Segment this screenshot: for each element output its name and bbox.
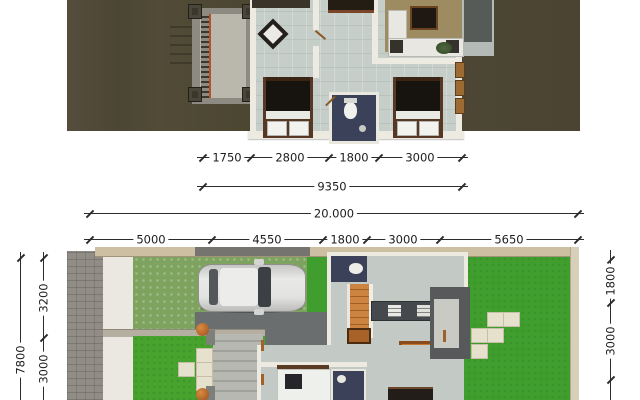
- stepping-stone: [196, 362, 213, 377]
- sofa-ground: [388, 387, 433, 400]
- door-frame: [261, 340, 264, 351]
- bathroom-lower: [331, 369, 366, 400]
- left-dimensions: 3200 3000 7800: [0, 0, 70, 400]
- dim-total-value: 7800: [15, 342, 28, 377]
- bathroom-ground: [331, 256, 367, 282]
- flower-pot: [196, 323, 209, 336]
- dim-tick: [40, 334, 48, 342]
- patio-floor: [434, 299, 459, 348]
- sink: [337, 375, 346, 383]
- car-windshield: [258, 267, 271, 307]
- floorplan-canvas: 1750 2800 1800 3000 9350 20.000 5000 455…: [0, 0, 640, 400]
- car: [196, 258, 308, 314]
- dim-tick: [17, 254, 25, 262]
- bedroom-desk: [277, 369, 331, 400]
- door-frame: [261, 374, 264, 385]
- dim-value: 3200: [38, 280, 51, 315]
- entry-steps: [213, 334, 263, 400]
- garden-strip: [307, 256, 327, 314]
- bedroom-headboard: [277, 365, 329, 369]
- door-frame: [443, 330, 446, 342]
- car-mirror: [254, 259, 264, 265]
- stepping-stone: [487, 328, 504, 343]
- cooktop: [388, 305, 401, 317]
- toilet: [349, 263, 363, 274]
- ground-floor-plan: [0, 0, 640, 400]
- dim-value: 3000: [605, 323, 618, 358]
- dim-value: 3000: [38, 351, 51, 386]
- carport-gate: [195, 247, 310, 256]
- stepping-stone: [196, 348, 213, 363]
- car-mirror: [254, 309, 264, 315]
- stepping-stone: [471, 344, 488, 359]
- car-rear-window: [209, 269, 218, 305]
- desk-chair: [285, 374, 302, 389]
- stepping-stone: [178, 362, 195, 377]
- stone-fence: [67, 251, 103, 400]
- dim-tick: [607, 376, 615, 384]
- dim-line: [20, 252, 21, 400]
- wardrobe: [347, 328, 371, 344]
- stepping-stone: [503, 312, 520, 327]
- patio-deck: [430, 287, 470, 359]
- stepping-stone: [487, 312, 504, 327]
- right-dimensions: 1800 3000: [580, 0, 640, 400]
- dim-value: 1800: [605, 263, 618, 298]
- side-path: [103, 256, 133, 400]
- flower-pot: [196, 388, 209, 400]
- dim-tick: [40, 254, 48, 262]
- dim-tick: [607, 299, 615, 307]
- car-roof: [220, 268, 258, 306]
- boundary-wall-right: [570, 247, 579, 400]
- stepping-stone: [471, 328, 488, 343]
